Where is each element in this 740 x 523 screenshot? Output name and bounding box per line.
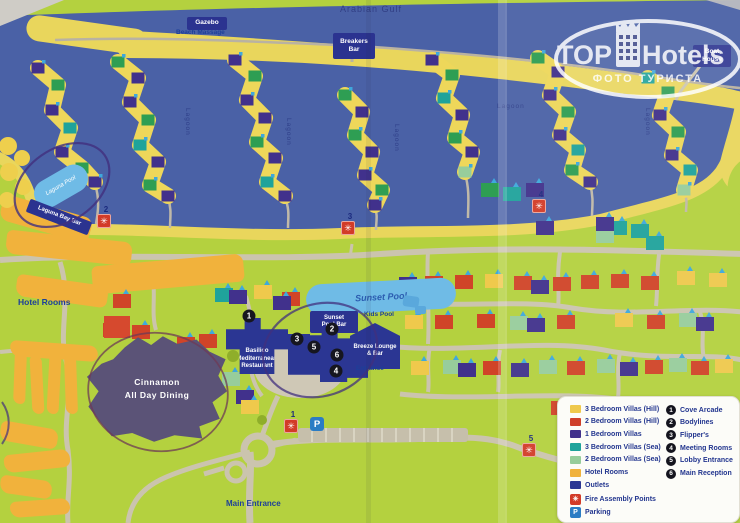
numbered-marker-1: 1: [243, 310, 256, 323]
legend-item: Outlets: [570, 481, 609, 489]
fire-assembly-point-4: ✳: [532, 199, 546, 213]
legend-numbered-item: 6Main Reception: [666, 469, 732, 479]
legend-item-label: 3 Bedroom Villas (Sea): [585, 444, 661, 451]
legend-numbered-label: Lobby Entrance: [680, 457, 733, 464]
legend-number-badge: 5: [666, 456, 676, 466]
legend-numbered-label: Flipper's: [680, 432, 709, 439]
legend: 3 Bedroom Villas (Hill)2 Bedroom Villas …: [557, 396, 740, 523]
fire-assembly-icon: ✳: [570, 494, 581, 505]
legend-item: 3 Bedroom Villas (Hill): [570, 405, 659, 413]
fire-assembly-number: 5: [529, 434, 533, 443]
legend-item-label: 2 Bedroom Villas (Hill): [585, 418, 659, 425]
legend-numbered-item: 4Meeting Rooms: [666, 443, 732, 453]
resort-map-photo: Laguna Pool Sunset Pool Gazebo Breakers …: [0, 0, 740, 523]
numbered-marker-2: 2: [326, 323, 339, 336]
legend-item: 2 Bedroom Villas (Hill): [570, 418, 659, 426]
legend-item-label: 3 Bedroom Villas (Hill): [585, 406, 659, 413]
legend-item: Hotel Rooms: [570, 469, 628, 477]
legend-item-label: Outlets: [585, 482, 609, 489]
legend-swatch: [570, 481, 581, 489]
fire-assembly-point-3: ✳: [341, 221, 355, 235]
numbered-marker-3: 3: [291, 333, 304, 346]
legend-numbered-label: Meeting Rooms: [680, 445, 732, 452]
legend-item-label: Parking: [585, 509, 611, 516]
legend-item: ✳Fire Assembly Points: [570, 494, 656, 505]
legend-numbered-label: Cove Arcade: [680, 407, 723, 414]
legend-numbered-item: 3Flipper's: [666, 430, 709, 440]
fire-assembly-number: 2: [104, 205, 108, 214]
legend-item: PParking: [570, 507, 611, 518]
parking-marker: P: [310, 417, 324, 431]
legend-item: 1 Bedroom Villas: [570, 430, 642, 438]
legend-swatch: [570, 469, 581, 477]
fire-assembly-number: 1: [291, 410, 295, 419]
legend-swatch: [570, 405, 581, 413]
legend-item-label: 2 Bedroom Villas (Sea): [585, 456, 661, 463]
legend-swatch: [570, 443, 581, 451]
legend-numbered-label: Main Reception: [680, 470, 732, 477]
legend-numbered-label: Bodylines: [680, 419, 713, 426]
legend-numbered-item: 5Lobby Entrance: [666, 456, 733, 466]
legend-swatch: [570, 430, 581, 438]
fire-assembly-point-2: ✳: [97, 214, 111, 228]
legend-item-label: 1 Bedroom Villas: [585, 431, 642, 438]
legend-item-label: Hotel Rooms: [585, 469, 628, 476]
legend-item-label: Fire Assembly Points: [585, 496, 656, 503]
legend-number-badge: 3: [666, 430, 676, 440]
legend-item: 2 Bedroom Villas (Sea): [570, 456, 661, 464]
legend-swatch: [570, 456, 581, 464]
fire-assembly-point-1: ✳: [284, 419, 298, 433]
numbered-marker-4: 4: [330, 365, 343, 378]
fire-assembly-point-5: ✳: [522, 443, 536, 457]
legend-number-badge: 2: [666, 418, 676, 428]
legend-number-badge: 6: [666, 469, 676, 479]
fire-assembly-number: 3: [348, 212, 352, 221]
legend-numbered-item: 1Cove Arcade: [666, 405, 723, 415]
legend-number-badge: 1: [666, 405, 676, 415]
legend-number-badge: 4: [666, 443, 676, 453]
legend-swatch: [570, 418, 581, 426]
legend-numbered-item: 2Bodylines: [666, 418, 713, 428]
parking-icon: P: [570, 507, 581, 518]
numbered-marker-5: 5: [308, 341, 321, 354]
fire-assembly-number: 4: [539, 190, 543, 199]
legend-item: 3 Bedroom Villas (Sea): [570, 443, 661, 451]
numbered-marker-6: 6: [331, 349, 344, 362]
